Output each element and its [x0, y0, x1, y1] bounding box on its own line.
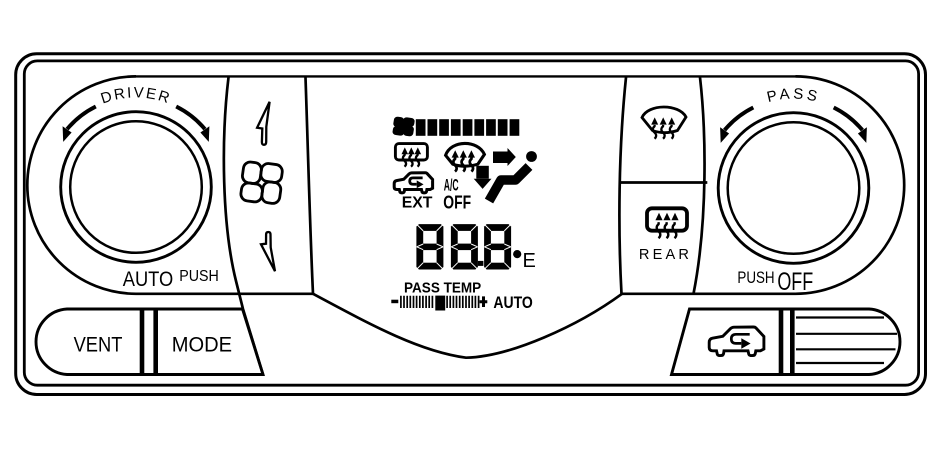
svg-text:OFF: OFF: [777, 269, 813, 296]
svg-text:PUSH: PUSH: [179, 268, 219, 285]
svg-text:PASS TEMP: PASS TEMP: [404, 280, 481, 296]
svg-text:AUTO: AUTO: [493, 293, 532, 312]
svg-text:AUTO: AUTO: [123, 267, 174, 291]
svg-text:VENT: VENT: [74, 333, 123, 356]
svg-text:PUSH: PUSH: [737, 268, 774, 287]
svg-text:OFF: OFF: [443, 191, 471, 212]
svg-text:MODE: MODE: [172, 333, 232, 356]
svg-text:EXT: EXT: [402, 195, 433, 212]
svg-text:E: E: [523, 250, 536, 272]
